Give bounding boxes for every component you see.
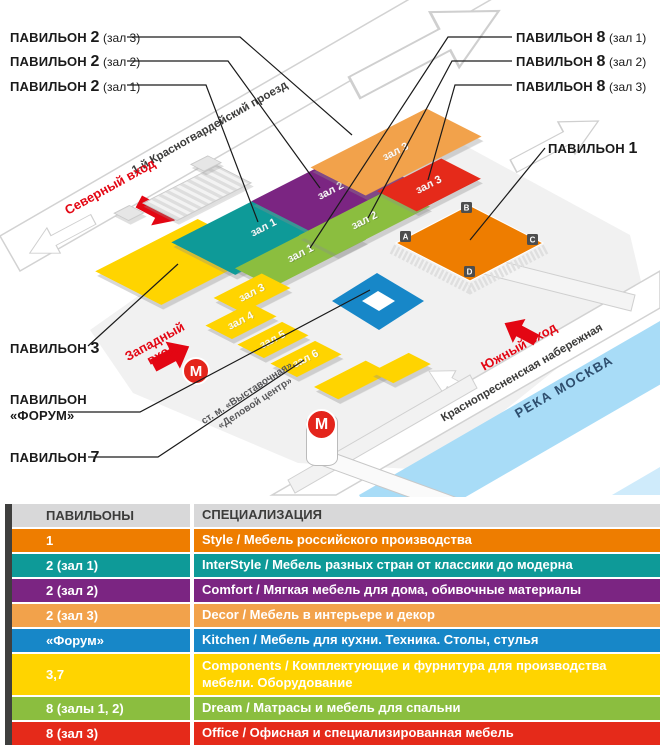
legend-spec-cell: Dream / Матрасы и мебель для спальни bbox=[194, 697, 660, 720]
callout-pavilion8-hall2: ПАВИЛЬОН 8 (зал 2) bbox=[516, 53, 646, 71]
svg-text:A: A bbox=[403, 233, 409, 242]
legend-pavilion-cell: 8 (зал 3) bbox=[12, 722, 190, 745]
legend-pavilion-cell: 1 bbox=[12, 529, 190, 552]
callout-pavilion2-hall1: ПАВИЛЬОН 2 (зал 1) bbox=[10, 78, 140, 96]
legend-header-specialization: СПЕЦИАЛИЗАЦИЯ bbox=[194, 504, 660, 527]
callout-pavilion8-hall1: ПАВИЛЬОН 8 (зал 1) bbox=[516, 29, 646, 47]
legend-spec-cell: Style / Мебель российского производства bbox=[194, 529, 660, 552]
callout-pavilion2-hall3: ПАВИЛЬОН 2 (зал 3) bbox=[10, 29, 140, 47]
svg-text:B: B bbox=[464, 204, 470, 213]
legend-spec-cell: InterStyle / Мебель разных стран от клас… bbox=[194, 554, 660, 577]
callout-pavilion8-hall3: ПАВИЛЬОН 8 (зал 3) bbox=[516, 78, 646, 96]
legend-pavilion-cell: «Форум» bbox=[12, 629, 190, 652]
svg-text:D: D bbox=[467, 268, 473, 277]
legend-pavilion-cell: 8 (залы 1, 2) bbox=[12, 697, 190, 720]
legend-row-pavilions3-7: 3,7 Components / Комплектующие и фурниту… bbox=[12, 654, 660, 695]
svg-text:C: C bbox=[530, 236, 536, 245]
legend-spec-cell: Comfort / Мягкая мебель для дома, обивоч… bbox=[194, 579, 660, 602]
river-corner bbox=[612, 467, 660, 495]
legend-header-pavilions: ПАВИЛЬОНЫ bbox=[12, 504, 190, 527]
legend-row-pavilion2-hall2: 2 (зал 2) Comfort / Мягкая мебель для до… bbox=[12, 579, 660, 602]
callout-pavilion1: ПАВИЛЬОН 1 bbox=[548, 140, 637, 158]
legend-row-pavilion2-hall3: 2 (зал 3) Decor / Мебель в интерьере и д… bbox=[12, 604, 660, 627]
legend-row-pavilion8-hall3: 8 (зал 3) Office / Офисная и специализир… bbox=[12, 722, 660, 745]
legend-pavilion-cell: 2 (зал 1) bbox=[12, 554, 190, 577]
legend-spec-cell: Components / Комплектующие и фурнитура д… bbox=[194, 654, 660, 695]
callout-pavilion3: ПАВИЛЬОН 3 bbox=[10, 340, 99, 358]
legend-row-pavilion8-halls12: 8 (залы 1, 2) Dream / Матрасы и мебель д… bbox=[12, 697, 660, 720]
legend-spec-cell: Decor / Мебель в интерьере и декор bbox=[194, 604, 660, 627]
legend-row-forum: «Форум» Kitchen / Мебель для кухни. Техн… bbox=[12, 629, 660, 652]
callout-pavilion-forum: ПАВИЛЬОН «ФОРУМ» bbox=[10, 392, 87, 425]
callout-pavilion7: ПАВИЛЬОН 7 bbox=[10, 449, 99, 467]
legend-header-row: ПАВИЛЬОНЫ СПЕЦИАЛИЗАЦИЯ bbox=[12, 504, 660, 527]
legend-row-pavilion1: 1 Style / Мебель российского производств… bbox=[12, 529, 660, 552]
callout-pavilion2-hall2: ПАВИЛЬОН 2 (зал 2) bbox=[10, 53, 140, 71]
legend-pavilion-cell: 2 (зал 3) bbox=[12, 604, 190, 627]
legend-spec-cell: Office / Офисная и специализированная ме… bbox=[194, 722, 660, 745]
legend-table: ПАВИЛЬОНЫ СПЕЦИАЛИЗАЦИЯ 1 Style / Мебель… bbox=[5, 504, 660, 745]
legend-spec-cell: Kitchen / Мебель для кухни. Техника. Сто… bbox=[194, 629, 660, 652]
metro-icon-west: М bbox=[182, 357, 210, 385]
exhibition-site-map: A B C D зал 1 зал 2 зал 3 зал 1 зал 2 за… bbox=[0, 0, 660, 497]
legend-row-pavilion2-hall1: 2 (зал 1) InterStyle / Мебель разных стр… bbox=[12, 554, 660, 577]
legend-pavilion-cell: 2 (зал 2) bbox=[12, 579, 190, 602]
metro-icon-station: М bbox=[306, 409, 337, 440]
legend-pavilion-cell: 3,7 bbox=[12, 654, 190, 695]
